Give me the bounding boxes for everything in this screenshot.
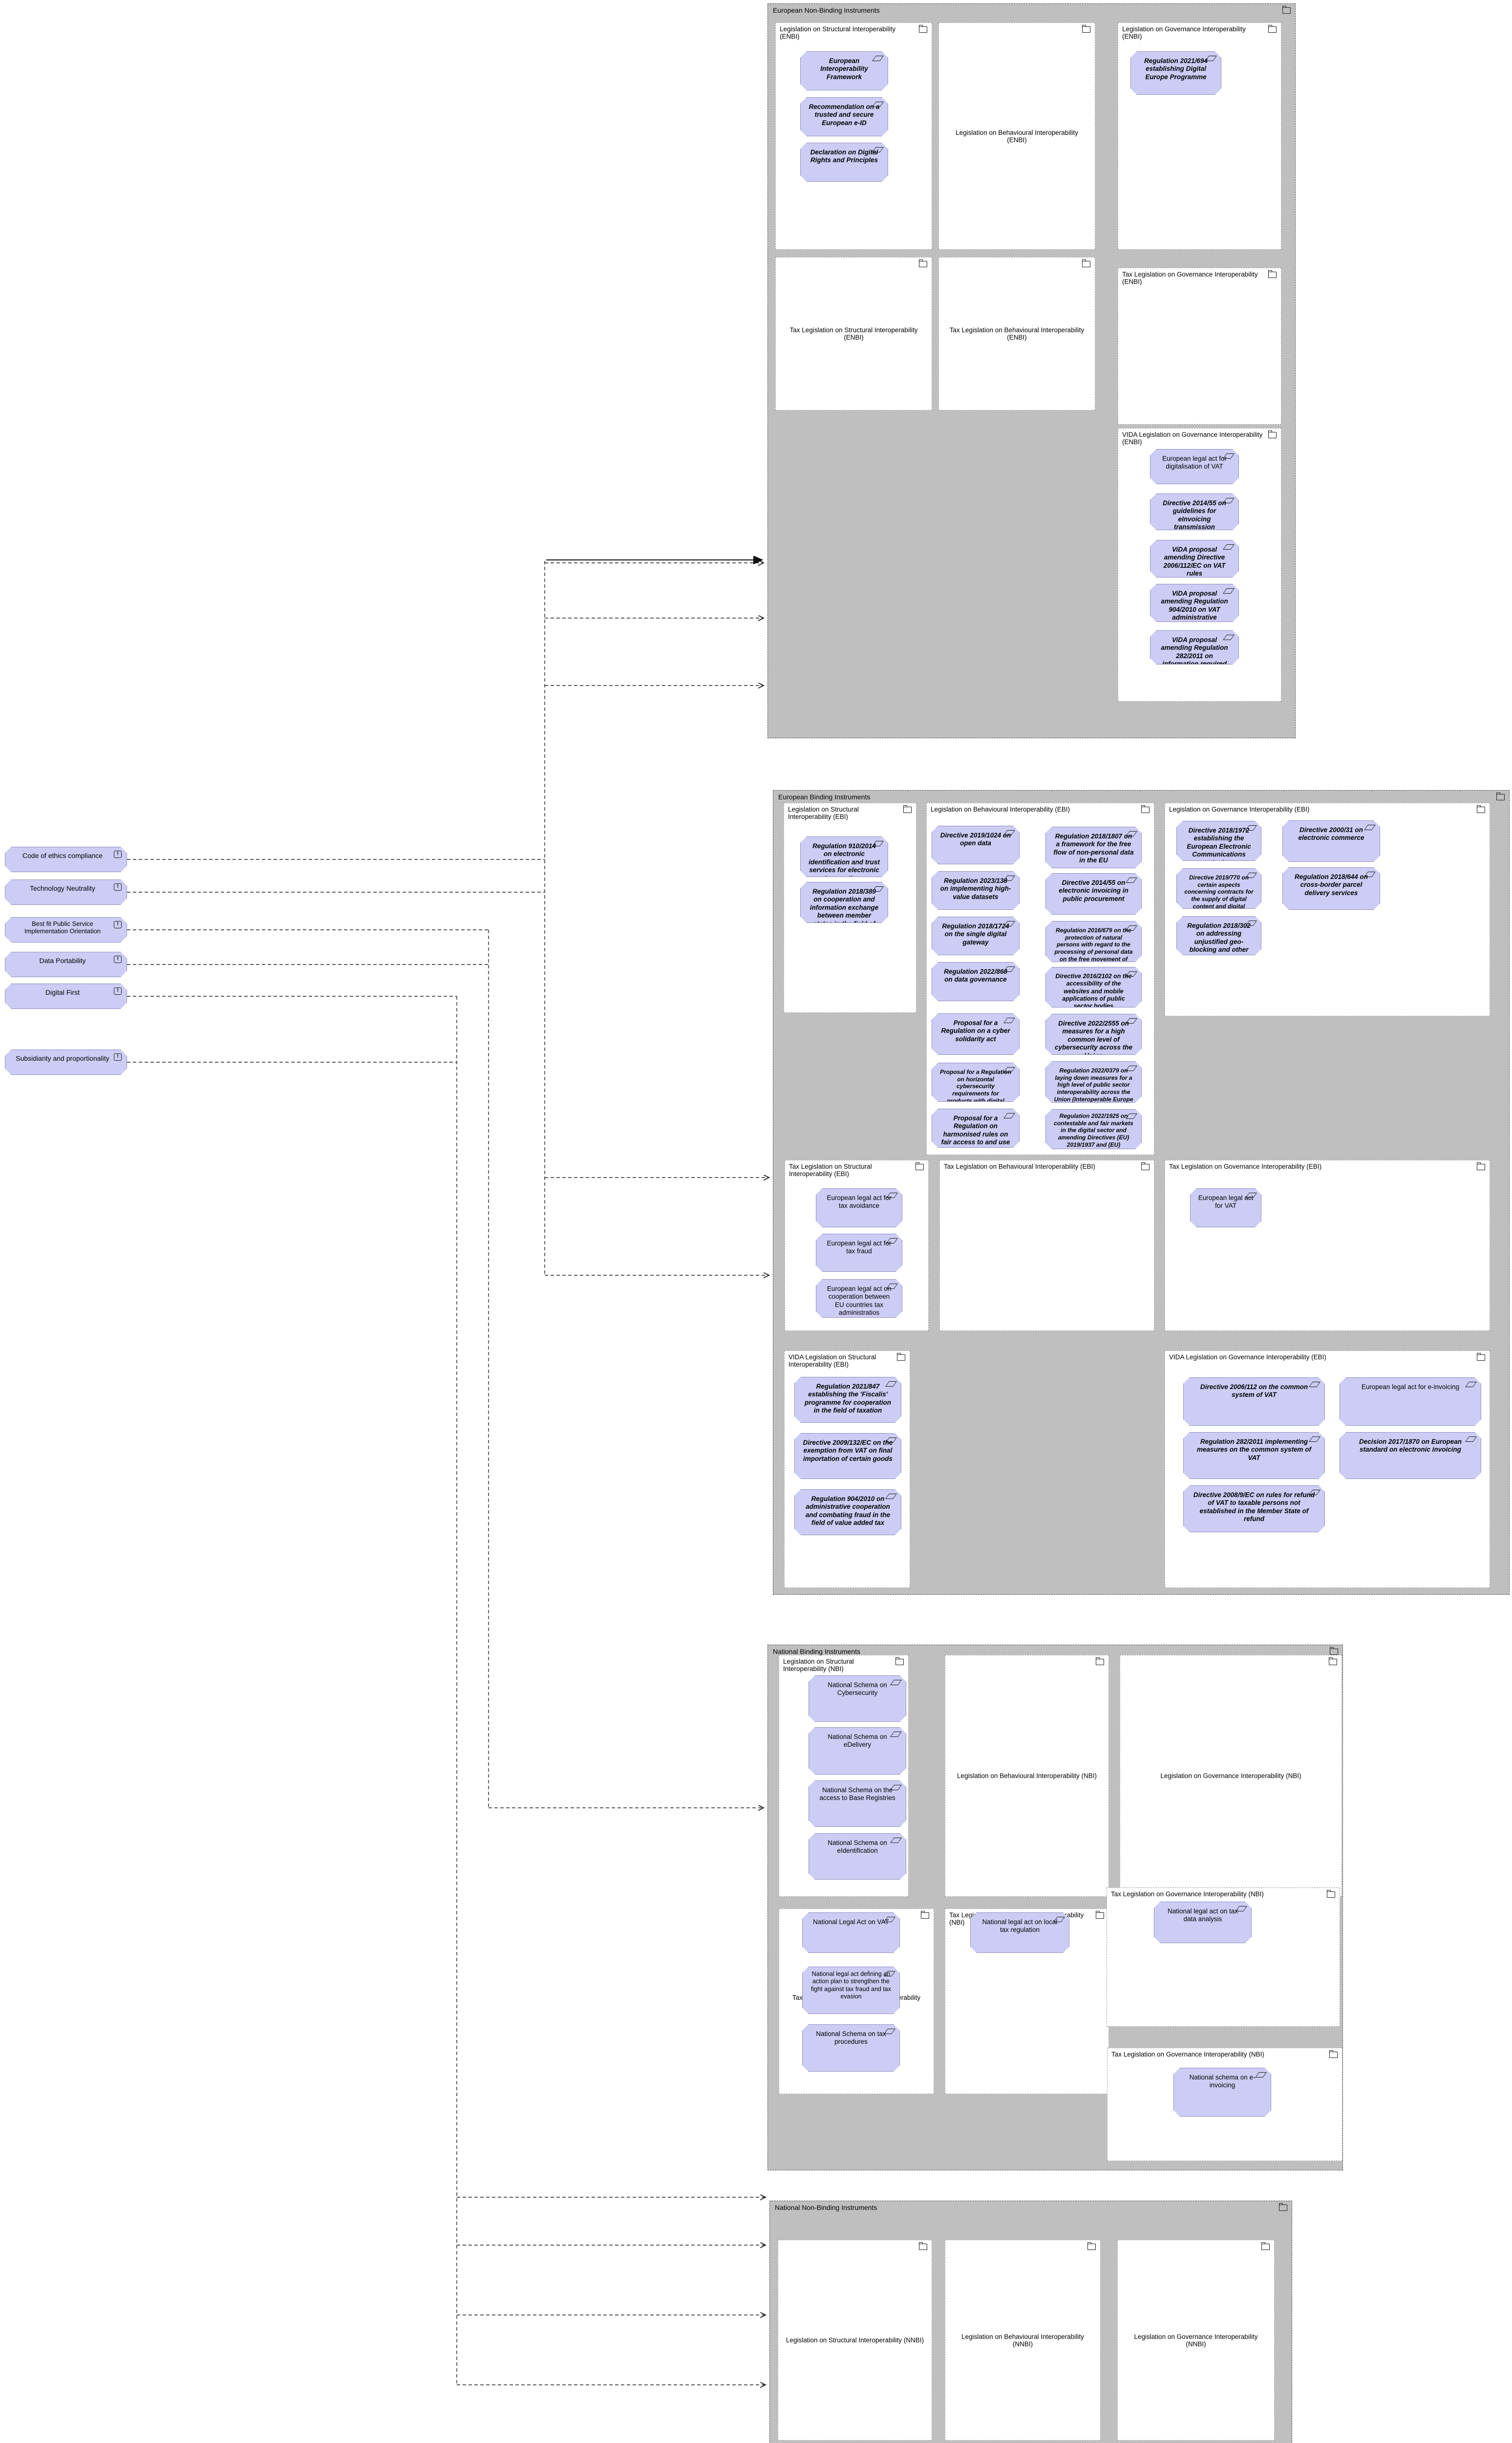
container-tax-behavioural-nbi[interactable]: Tax Legislation on Behavioural Interoper… <box>945 1908 1109 2094</box>
principle-icon: ! <box>114 987 122 995</box>
container-vida-governance-ebi[interactable]: VIDA Legislation on Governance Interoper… <box>1165 1350 1490 1588</box>
container-title: Legislation on Structural Interoperabili… <box>783 1658 894 1672</box>
deliverable-icon <box>1245 921 1257 926</box>
deliverable-icon <box>1126 1066 1137 1071</box>
container-tax-behavioural-ebi[interactable]: Tax Legislation on Behavioural Interoper… <box>939 1160 1154 1331</box>
item-label: Regulation 2022/1925 on contestable and … <box>1054 1113 1133 1149</box>
folder-icon <box>1327 1891 1335 1898</box>
item-label: European legal act for digitalisation of… <box>1162 455 1227 470</box>
item-label: Proposal for a Regulation on horizontal … <box>940 1069 1011 1102</box>
deliverable-item[interactable]: Regulation 2018/1724 on the single digit… <box>932 917 1020 955</box>
item-label: Declaration on Digital Rights and Princi… <box>810 149 878 164</box>
container-tax-governance-ebi[interactable]: Tax Legislation on Governance Interopera… <box>1165 1160 1490 1331</box>
item-label: Regulation 2022/868 on data governance <box>944 968 1007 983</box>
item-label: National Schema on the access to Base Re… <box>819 1786 895 1801</box>
folder-icon <box>919 26 927 33</box>
principle-data-portability[interactable]: Data Portability! <box>5 952 127 977</box>
item-label: Proposal for a Regulation on a cyber sol… <box>941 1019 1010 1043</box>
deliverable-icon <box>1245 1193 1257 1198</box>
principle-label: Digital First <box>45 988 80 996</box>
container-title: Legislation on Behavioural Interoperabil… <box>945 2240 1100 2440</box>
deliverable-item[interactable]: Directive 2009/132/EC on the exemption f… <box>794 1433 901 1479</box>
deliverable-icon <box>1003 830 1015 836</box>
deliverable-item[interactable]: European legal act for VAT <box>1190 1188 1261 1227</box>
item-label: Directive 2019/1024 on open data <box>940 832 1011 847</box>
container-title: Legislation on Governance Interoperabili… <box>1122 25 1266 40</box>
item-label: Regulation 2023/138 on implementing high… <box>940 877 1011 900</box>
item-label: ViDA proposal amending Directive 2006/11… <box>1164 546 1226 577</box>
container-legislation-behavioural-nnbi[interactable]: Legislation on Behavioural Interoperabil… <box>945 2240 1101 2441</box>
deliverable-item[interactable]: European legal act for tax avoidance <box>816 1188 902 1227</box>
deliverable-icon <box>1245 873 1257 878</box>
item-label: European Interoperability Framework <box>820 57 868 81</box>
deliverable-icon <box>872 56 884 61</box>
deliverable-icon <box>1309 1436 1320 1442</box>
deliverable-item[interactable]: Directive 2022/2555 on measures for a hi… <box>1045 1014 1142 1055</box>
folder-icon <box>1477 1164 1485 1170</box>
deliverable-item[interactable]: Regulation 910/2014 on electronic identi… <box>800 836 888 877</box>
deliverable-item[interactable]: Regulation 2022/0379 on laying down meas… <box>1045 1061 1142 1103</box>
container-legislation-governance-nbi[interactable]: Legislation on Governance Interoperabili… <box>1120 1655 1342 1897</box>
principle-label: Technology Neutrality <box>30 884 95 892</box>
deliverable-icon <box>1223 544 1235 550</box>
item-label: Regulation 2018/1807 on a framework for … <box>1053 833 1133 864</box>
item-label: Directive 2014/55 on guidelines for eInv… <box>1163 499 1226 530</box>
item-label: Regulation 2021/694 establishing Digital… <box>1144 57 1208 81</box>
deliverable-item[interactable]: National legal act on tax data analysis <box>1154 1902 1252 1943</box>
item-label: Directive 2016/2102 on the accessibility… <box>1055 973 1131 1007</box>
deliverable-icon <box>872 886 884 892</box>
item-label: National schema on e-invoicing <box>1189 2074 1255 2089</box>
item-label: National Legal Act on VAT <box>813 1918 889 1926</box>
item-label: European legal act for tax fraud <box>827 1240 891 1255</box>
deliverable-item[interactable]: Regulation 2022/1925 on contestable and … <box>1045 1109 1142 1149</box>
deliverable-icon <box>885 1494 897 1499</box>
folder-icon <box>1477 807 1485 813</box>
item-label: Directive 2019/770 on certain aspects co… <box>1184 874 1253 909</box>
folder-icon <box>1330 1649 1338 1655</box>
container-title: Legislation on Behavioural Interoperabil… <box>931 806 1139 813</box>
container-title: Legislation on Behavioural Interoperabil… <box>945 1655 1108 1896</box>
folder-icon <box>1096 1659 1104 1665</box>
deliverable-icon <box>890 1732 902 1737</box>
item-label: Regulation 2018/644 on cross-border parc… <box>1295 873 1368 897</box>
item-label: National legal act on tax data analysis <box>1168 1907 1238 1923</box>
deliverable-icon <box>886 1193 898 1198</box>
container-title: VIDA Legislation on Structural Interoper… <box>788 1353 895 1368</box>
folder-icon <box>919 261 927 267</box>
deliverable-icon <box>1003 1067 1015 1072</box>
deliverable-icon <box>884 2029 895 2034</box>
folder-icon <box>1082 261 1090 267</box>
container-legislation-structural-enbi[interactable]: Legislation on Structural Interoperabili… <box>775 22 932 250</box>
folder-icon <box>1282 7 1291 14</box>
item-label: Directive 2022/2555 on measures for a hi… <box>1055 1020 1132 1055</box>
folder-icon <box>1268 26 1277 33</box>
container-tax-governance-nbi[interactable]: Tax Legislation on Governance Interopera… <box>1107 1887 1340 2027</box>
container-tax-governance-enbi[interactable]: Tax Legislation on Governance Interopera… <box>1118 268 1281 425</box>
deliverable-item[interactable]: Directive 2016/2102 on the accessibility… <box>1045 967 1142 1007</box>
deliverable-icon <box>1053 1917 1065 1922</box>
deliverable-item[interactable]: European legal act for e-invoicing <box>1340 1377 1481 1426</box>
deliverable-icon <box>1126 925 1137 931</box>
item-label: European legal act for VAT <box>1198 1194 1254 1209</box>
deliverable-icon <box>885 1381 897 1387</box>
deliverable-icon <box>872 102 884 107</box>
folder-icon <box>1261 2244 1270 2250</box>
deliverable-icon <box>1205 56 1217 61</box>
folder-icon <box>1268 272 1277 278</box>
container-legislation-behavioural-ebi[interactable]: Legislation on Behavioural Interoperabil… <box>926 803 1154 1155</box>
container-vida-structural-ebi[interactable]: VIDA Legislation on Structural Interoper… <box>784 1350 910 1588</box>
deliverable-icon <box>1003 876 1015 881</box>
container-title: Tax Legislation on Governance Interopera… <box>1111 1890 1325 1898</box>
container-tax-structural-ebi[interactable]: Tax Legislation on Structural Interopera… <box>785 1160 929 1331</box>
deliverable-icon <box>1126 1018 1137 1024</box>
principle-label: Code of ethics compliance <box>22 852 103 859</box>
group-european-binding[interactable]: European Binding Instruments Legislation… <box>773 790 1510 1595</box>
container-title: Tax Legislation on Structural Interopera… <box>776 257 932 410</box>
deliverable-item[interactable]: Directive 2000/31 on electronic commerce <box>1282 820 1380 862</box>
deliverable-item[interactable]: Regulation 2018/302 on addressing unjust… <box>1176 916 1261 955</box>
deliverable-item[interactable]: Proposal for a Regulation on horizontal … <box>932 1063 1020 1102</box>
deliverable-item[interactable]: Directive 2019/770 on certain aspects co… <box>1176 868 1261 909</box>
item-label: European legal act on cooperation betwee… <box>827 1285 891 1316</box>
group-national-non-binding[interactable]: National Non-Binding Instruments Legisla… <box>769 2201 1292 2443</box>
deliverable-item[interactable]: Regulation 2016/679 on the protection of… <box>1045 921 1142 962</box>
folder-icon <box>897 1354 905 1361</box>
group-title: European Binding Instruments <box>778 793 870 801</box>
principle-icon: ! <box>114 921 122 928</box>
folder-icon <box>1477 1354 1485 1361</box>
deliverable-icon <box>1126 831 1137 836</box>
deliverable-item[interactable]: Directive 2008/9/EC on rules for refund … <box>1183 1485 1325 1532</box>
deliverable-item[interactable]: Proposal for a Regulation on a cyber sol… <box>932 1013 1020 1055</box>
deliverable-icon <box>1003 966 1015 972</box>
item-label: Regulation 2021/847 establishing the 'Fi… <box>805 1383 891 1414</box>
folder-icon <box>1279 2205 1287 2211</box>
deliverable-item[interactable]: Directive 2018/1972 establishing the Eur… <box>1176 821 1261 861</box>
container-title: Legislation on Behavioural Interoperabil… <box>939 23 1095 249</box>
folder-icon <box>1082 26 1090 33</box>
principle-label: Best fit Public Service Implementation O… <box>24 920 101 935</box>
deliverable-icon <box>872 147 884 152</box>
container-legislation-behavioural-enbi[interactable]: Legislation on Behavioural Interoperabil… <box>938 22 1095 250</box>
folder-icon <box>1268 432 1277 438</box>
container-legislation-structural-ebi[interactable]: Legislation on Structural Interoperabili… <box>784 803 916 1013</box>
deliverable-icon <box>890 1680 902 1685</box>
container-legislation-governance-nnbi[interactable]: Legislation on Governance Interoperabili… <box>1117 2240 1275 2441</box>
deliverable-item[interactable]: Regulation 2018/389 on cooperation and i… <box>800 882 888 923</box>
container-title: VIDA Legislation on Governance Interoper… <box>1122 431 1266 446</box>
folder-icon <box>1141 1164 1150 1170</box>
container-title: Legislation on Governance Interoperabili… <box>1118 2240 1274 2440</box>
item-label: Regulation 2018/1724 on the single digit… <box>942 922 1009 946</box>
container-title: Legislation on Governance Interoperabili… <box>1120 1655 1342 1896</box>
deliverable-icon <box>872 841 884 846</box>
container-vida-governance-enbi[interactable]: VIDA Legislation on Governance Interoper… <box>1118 428 1281 702</box>
deliverable-item[interactable]: National Schema on Cybersecurity <box>809 1675 906 1722</box>
item-label: Directive 2018/1972 establishing the Eur… <box>1187 827 1251 861</box>
deliverable-item[interactable]: Decision 2017/1870 on European standard … <box>1340 1432 1481 1479</box>
deliverable-icon <box>885 1437 897 1443</box>
item-label: National legal act defining an action pl… <box>811 1971 891 2000</box>
folder-icon <box>1141 807 1150 813</box>
deliverable-item[interactable]: European Interoperability Framework <box>800 51 888 90</box>
deliverable-item[interactable]: Directive 2006/112 on the common system … <box>1183 1377 1325 1426</box>
folder-icon <box>895 1659 904 1665</box>
principle-label: Subsidiarity and proportionality <box>16 1054 109 1062</box>
deliverable-item[interactable]: Directive 2019/1024 on open data <box>932 826 1020 864</box>
item-label: Regulation 2016/679 on the protection of… <box>1054 927 1132 962</box>
deliverable-icon <box>886 1238 898 1243</box>
group-title: National Non-Binding Instruments <box>775 2204 877 2211</box>
deliverable-icon <box>1309 1382 1320 1387</box>
container-legislation-governance-ebi[interactable]: Legislation on Governance Interoperabili… <box>1165 803 1490 1016</box>
deliverable-item[interactable]: ViDA proposal amending Regulation 904/20… <box>1150 584 1239 622</box>
principle-icon: ! <box>114 1053 122 1061</box>
deliverable-item[interactable]: European legal act for tax fraud <box>816 1234 902 1272</box>
folder-icon <box>903 807 912 813</box>
folder-icon <box>1087 2244 1096 2250</box>
deliverable-icon <box>886 1284 898 1289</box>
group-title: European Non-Binding Instruments <box>773 6 880 14</box>
deliverable-item[interactable]: Regulation 904/2010 on administrative co… <box>794 1489 901 1535</box>
deliverable-item[interactable]: National schema on e-invoicing <box>1173 2068 1271 2117</box>
deliverable-icon <box>1223 635 1235 640</box>
container-tax-governance-nbi-2[interactable]: Tax Legislation on Governance Interopera… <box>1107 2048 1342 2161</box>
deliverable-icon <box>884 1917 895 1922</box>
deliverable-item[interactable]: National legal act defining an action pl… <box>802 1967 900 2014</box>
deliverable-item[interactable]: Recommendation on a trusted and secure E… <box>800 97 888 136</box>
deliverable-item[interactable]: Regulation 2018/1807 on a framework for … <box>1045 827 1142 868</box>
item-label: National Schema on eDelivery <box>828 1733 887 1748</box>
item-label: Regulation 2018/302 on addressing unjust… <box>1187 922 1251 955</box>
folder-icon <box>921 1912 929 1919</box>
folder-icon <box>1329 1659 1337 1665</box>
deliverable-icon <box>1223 588 1235 594</box>
principle-icon: ! <box>114 956 122 963</box>
container-title: Tax Legislation on Behavioural Interoper… <box>944 1163 1139 1170</box>
deliverable-item[interactable]: Regulation 2023/138 on implementing high… <box>932 871 1020 910</box>
deliverable-item[interactable]: Declaration on Digital Rights and Princi… <box>800 143 888 182</box>
deliverable-item[interactable]: National Schema on eIdentification <box>809 1833 906 1880</box>
deliverable-icon <box>1126 971 1137 977</box>
item-label: Regulation 910/2014 on electronic identi… <box>809 842 880 877</box>
container-legislation-behavioural-nbi[interactable]: Legislation on Behavioural Interoperabil… <box>945 1655 1109 1897</box>
deliverable-item[interactable]: European legal act on cooperation betwee… <box>816 1279 902 1318</box>
container-legislation-governance-enbi[interactable]: Legislation on Governance Interoperabili… <box>1118 22 1281 250</box>
item-label: Directive 2008/9/EC on rules for refund … <box>1193 1491 1315 1522</box>
item-label: Directive 2009/132/EC on the exemption f… <box>803 1439 893 1462</box>
deliverable-icon <box>1223 453 1235 459</box>
deliverable-icon <box>1364 825 1376 830</box>
item-label: Decision 2017/1870 on European standard … <box>1359 1438 1462 1453</box>
deliverable-item[interactable]: National Schema on eDelivery <box>809 1727 906 1775</box>
principle-icon: ! <box>114 851 122 858</box>
folder-icon <box>919 2244 927 2250</box>
container-title: Legislation on Structural Interoperabili… <box>780 25 917 40</box>
container-title: Legislation on Structural Interoperabili… <box>778 2240 932 2440</box>
item-label: Regulation 2022/0379 on laying down meas… <box>1054 1067 1133 1103</box>
deliverable-icon <box>890 1785 902 1790</box>
container-tax-structural-nbi[interactable]: Tax Legislation on Structural Interopera… <box>779 1908 934 2094</box>
deliverable-item[interactable]: Regulation 282/2011 implementing measure… <box>1183 1432 1325 1479</box>
container-title: Tax Legislation on Governance Interopera… <box>1169 1163 1475 1170</box>
deliverable-item[interactable]: Regulation 2022/868 on data governance <box>932 962 1020 1001</box>
container-title: Tax Legislation on Governance Interopera… <box>1111 2051 1327 2058</box>
deliverable-item[interactable]: Directive 2014/55 on electronic invoicin… <box>1045 873 1142 915</box>
container-title: Legislation on Structural Interoperabili… <box>788 806 901 820</box>
folder-icon <box>916 1164 924 1170</box>
item-label: National Schema on Cybersecurity <box>828 1681 887 1696</box>
deliverable-item[interactable]: ViDA proposal amending Directive 2006/11… <box>1150 540 1239 578</box>
item-label: National legal act on local tax regulati… <box>982 1918 1058 1933</box>
item-label: Directive 2000/31 on electronic commerce <box>1298 826 1364 841</box>
principle-code-of-ethics[interactable]: Code of ethics compliance! <box>5 847 127 872</box>
item-label: Proposal for a Regulation on harmonised … <box>941 1114 1010 1148</box>
container-title: Tax Legislation on Governance Interopera… <box>1122 271 1266 285</box>
principle-technology-neutrality[interactable]: Technology Neutrality! <box>5 879 127 905</box>
deliverable-item[interactable]: National Schema on tax procedures <box>802 2024 900 2072</box>
deliverable-icon <box>1309 1490 1320 1495</box>
container-tax-behavioural-enbi[interactable]: Tax Legislation on Behavioural Interoper… <box>938 257 1095 410</box>
item-label: Regulation 2018/389 on cooperation and i… <box>810 888 878 923</box>
deliverable-icon <box>890 1838 902 1843</box>
deliverable-icon <box>1003 921 1015 926</box>
group-title: National Binding Instruments <box>773 1648 860 1655</box>
item-label: National Schema on eIdentification <box>828 1839 887 1854</box>
deliverable-item[interactable]: National Schema on the access to Base Re… <box>809 1780 906 1827</box>
item-label: Regulation 904/2010 on administrative co… <box>806 1495 890 1526</box>
deliverable-icon <box>1245 825 1257 831</box>
container-title: Tax Legislation on Structural Interopera… <box>789 1163 914 1178</box>
container-legislation-structural-nnbi[interactable]: Legislation on Structural Interoperabili… <box>778 2240 932 2441</box>
item-label: Regulation 282/2011 implementing measure… <box>1197 1438 1311 1461</box>
item-label: National Schema on tax procedures <box>816 2030 886 2045</box>
folder-icon <box>1496 794 1505 800</box>
deliverable-item[interactable]: Regulation 2021/847 establishing the 'Fi… <box>794 1377 901 1423</box>
group-european-non-binding[interactable]: European Non-Binding Instruments Legisla… <box>767 3 1296 738</box>
principle-label: Data Portability <box>40 957 86 964</box>
principle-icon: ! <box>114 883 122 891</box>
container-legislation-structural-nbi[interactable]: Legislation on Structural Interoperabili… <box>779 1655 909 1897</box>
principle-subsidiarity-proportionality[interactable]: Subsidiarity and proportionality! <box>5 1050 127 1075</box>
deliverable-item[interactable]: Directive 2014/55 on guidelines for eInv… <box>1150 493 1239 530</box>
item-label: Directive 2014/55 on electronic invoicin… <box>1059 879 1129 902</box>
container-title: VIDA Legislation on Governance Interoper… <box>1169 1353 1475 1361</box>
deliverable-item[interactable]: ViDA proposal amending Regulation 282/20… <box>1150 630 1239 664</box>
item-label: ViDA proposal amending Regulation 282/20… <box>1161 636 1228 664</box>
item-label: European legal act for e-invoicing <box>1362 1383 1459 1391</box>
deliverable-icon <box>1235 1906 1247 1911</box>
deliverable-item[interactable]: European legal act for digitalisation of… <box>1150 449 1239 484</box>
container-title: Tax Legislation on Behavioural Interoper… <box>939 257 1095 410</box>
deliverable-item[interactable]: Regulation 2021/694 establishing Digital… <box>1130 51 1221 95</box>
principle-best-fit-public-service[interactable]: Best fit Public Service Implementation O… <box>5 917 127 943</box>
folder-icon <box>1096 1912 1104 1919</box>
container-title: Legislation on Governance Interoperabili… <box>1169 806 1475 813</box>
principle-digital-first[interactable]: Digital First! <box>5 984 127 1009</box>
deliverable-icon <box>1465 1436 1477 1442</box>
deliverable-icon <box>1223 498 1235 503</box>
deliverable-item[interactable]: Regulation 2018/644 on cross-border parc… <box>1282 867 1380 910</box>
deliverable-icon <box>1003 1018 1015 1023</box>
group-national-binding[interactable]: National Binding Instruments Legislation… <box>767 1645 1343 2170</box>
deliverable-item[interactable]: National legal act on local tax regulati… <box>970 1912 1069 1953</box>
deliverable-item[interactable]: National Legal Act on VAT <box>802 1912 900 1953</box>
item-label: Recommendation on a trusted and secure E… <box>809 103 880 127</box>
item-label: Directive 2006/112 on the common system … <box>1200 1383 1308 1398</box>
diagram-canvas: European Non-Binding Instruments Legisla… <box>0 0 1512 2443</box>
item-label: ViDA proposal amending Regulation 904/20… <box>1161 590 1228 622</box>
deliverable-item[interactable]: Proposal for a Regulation on harmonised … <box>932 1109 1020 1148</box>
deliverable-icon <box>1255 2072 1267 2078</box>
folder-icon <box>1329 2052 1338 2058</box>
item-label: European legal act for tax avoidance <box>827 1194 891 1209</box>
deliverable-icon <box>1003 1113 1015 1118</box>
container-tax-structural-enbi[interactable]: Tax Legislation on Structural Interopera… <box>775 257 932 410</box>
deliverable-icon <box>1465 1382 1477 1387</box>
deliverable-icon <box>1126 878 1137 883</box>
deliverable-icon <box>1364 872 1376 877</box>
